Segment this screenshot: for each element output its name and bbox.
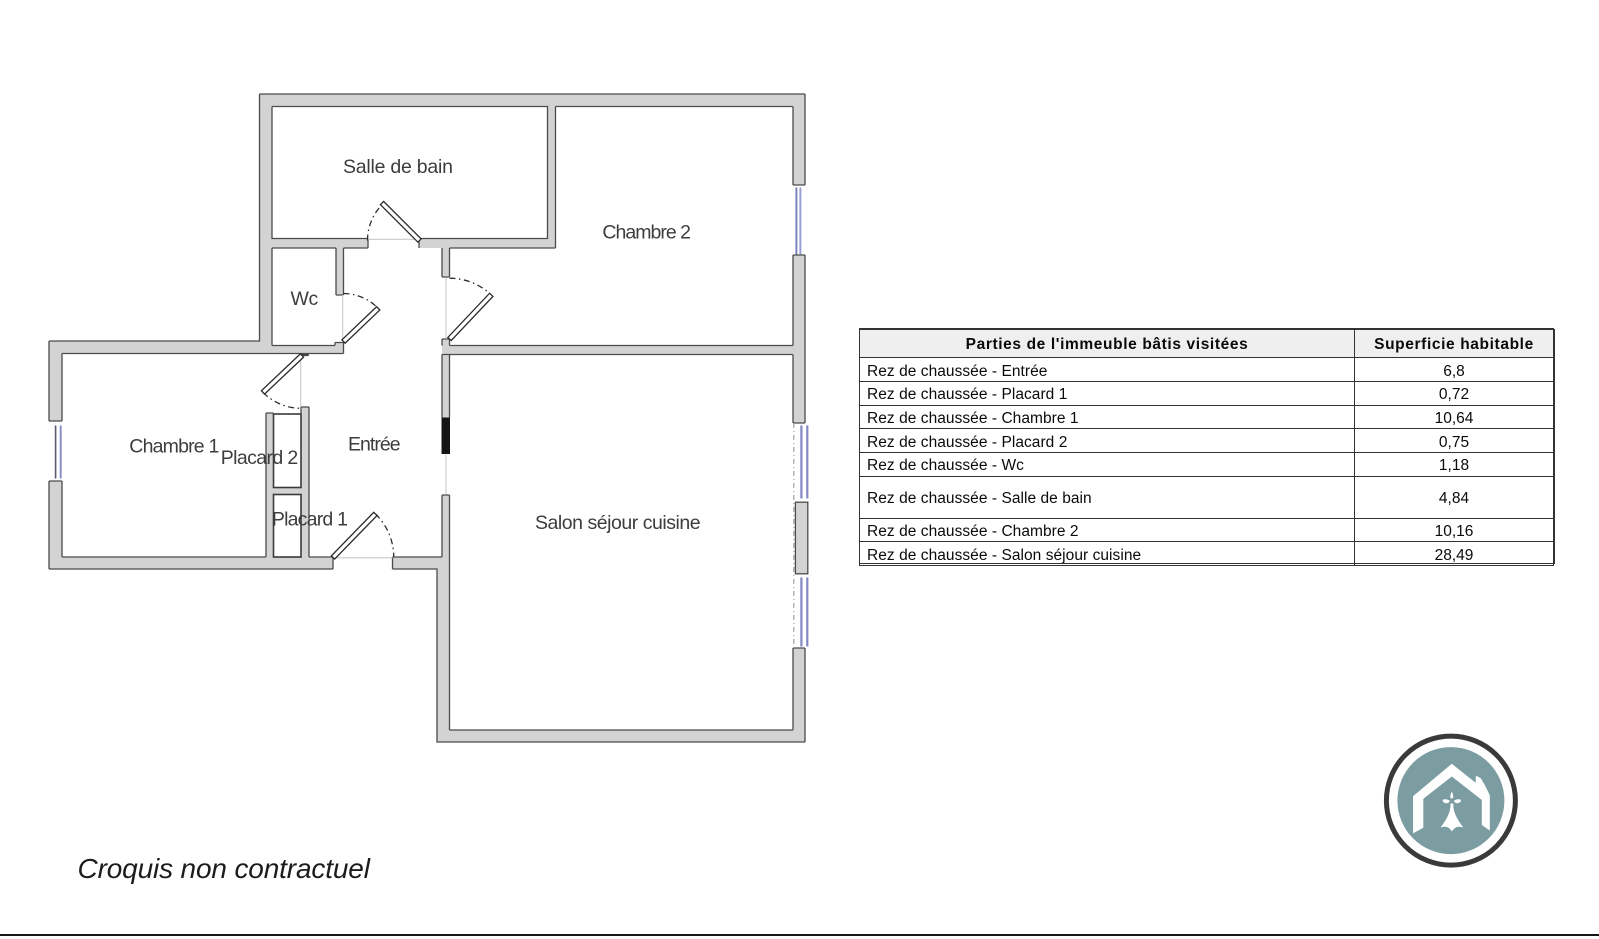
svg-text:Salon séjour cuisine: Salon séjour cuisine (535, 512, 701, 534)
svg-text:Placard 2: Placard 2 (221, 447, 298, 469)
svg-text:Wc: Wc (291, 288, 319, 310)
svg-text:Chambre 2: Chambre 2 (602, 221, 691, 243)
svg-text:Chambre 1: Chambre 1 (129, 435, 219, 457)
svg-text:Salle de bain: Salle de bain (343, 156, 453, 178)
svg-text:Placard 1: Placard 1 (272, 509, 348, 531)
svg-text:Entrée: Entrée (348, 433, 401, 455)
